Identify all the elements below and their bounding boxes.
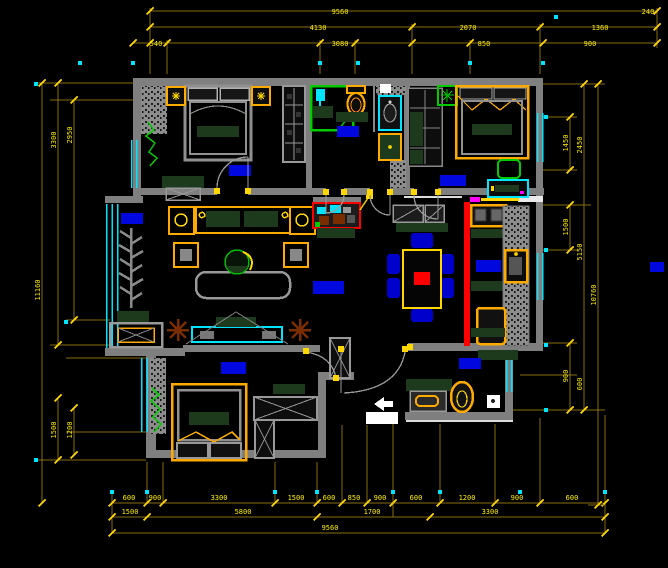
bench — [478, 350, 518, 360]
balcony-label — [121, 213, 143, 224]
wash-basin — [384, 104, 396, 122]
dim-text: 4130 — [310, 24, 327, 32]
armchair — [290, 207, 315, 234]
armchair — [169, 207, 194, 234]
plant — [167, 319, 189, 341]
dim-text: 5800 — [235, 508, 252, 516]
dim-text: 2950 — [66, 127, 74, 144]
dim-text: 1500 — [50, 422, 58, 439]
dim-text: 1700 — [364, 508, 381, 516]
dim-text: 600 — [410, 494, 423, 502]
tv — [216, 317, 256, 327]
paper-holder — [380, 84, 391, 93]
bedroom-1-furniture — [146, 86, 305, 200]
coat-rack — [119, 228, 143, 308]
dim-text: 1200 — [66, 422, 74, 439]
dim-text: 1200 — [459, 494, 476, 502]
bathroom-fixtures — [311, 84, 401, 160]
dim-text: 900 — [584, 40, 597, 48]
shoe-cabinet-top — [406, 379, 452, 391]
counter — [471, 281, 504, 291]
entry-arrow-icon — [374, 397, 393, 411]
dim-text: 540 — [150, 40, 163, 48]
kitchen-label — [476, 260, 501, 272]
dining-chair — [411, 309, 433, 322]
dim-text: 11160 — [34, 279, 42, 300]
hatched-pier — [141, 86, 167, 134]
dim-text: 10760 — [590, 284, 598, 305]
bed-pillow — [472, 124, 512, 135]
floor-plan-canvas[interactable]: 9560 240 4130 2070 1360 540 3080 850 900… — [0, 0, 668, 568]
dim-text: 850 — [478, 40, 491, 48]
table-centerpiece — [414, 272, 430, 285]
dim-text: 600 — [323, 494, 336, 502]
annotation-label — [650, 262, 664, 272]
bedroom-2-label — [440, 175, 466, 186]
bedroom-3-label — [221, 362, 246, 374]
bathroom-label — [337, 126, 359, 137]
bath-shelf — [336, 112, 368, 122]
dining-chair — [411, 233, 433, 248]
living-room-label — [313, 281, 344, 294]
kitchen-fixtures — [464, 197, 529, 346]
dim-text: 2450 — [576, 137, 584, 154]
shower-head — [316, 89, 325, 101]
living-room-furniture — [167, 195, 373, 344]
dim-text: 900 — [562, 370, 570, 383]
dresser-top — [162, 176, 204, 188]
dim-text: 9560 — [332, 8, 349, 16]
dim-text: 1500 — [562, 219, 570, 236]
entry-label — [459, 358, 481, 369]
dim-text: 1500 — [288, 494, 305, 502]
cad-viewport[interactable]: 9560 240 4130 2070 1360 540 3080 850 900… — [0, 0, 668, 568]
bed-pillow — [189, 412, 229, 425]
dim-text: 600 — [576, 378, 584, 391]
bedroom-3-furniture — [151, 362, 317, 460]
dim-text: 900 — [511, 494, 524, 502]
dimension-chain-bottom: 600 900 3300 1500 600 850 900 600 1200 9… — [109, 415, 609, 537]
dim-text: 1360 — [592, 24, 609, 32]
dim-text: 3300 — [482, 508, 499, 516]
dining-chair — [387, 278, 400, 298]
shelf — [273, 384, 305, 394]
dim-text: 3080 — [332, 40, 349, 48]
dining-chair — [441, 278, 454, 298]
coffee-table — [196, 272, 290, 298]
dim-text: 600 — [566, 494, 579, 502]
dim-text: 1450 — [562, 135, 570, 152]
dim-text: 5150 — [576, 244, 584, 261]
dimension-chain-top: 9560 240 4130 2070 1360 540 3080 850 900 — [130, 8, 661, 75]
sliding-door-track — [464, 202, 470, 346]
bedroom-2-furniture — [408, 86, 528, 197]
dim-text: 9560 — [322, 524, 339, 532]
dim-text: 850 — [348, 494, 361, 502]
dim-text: 600 — [123, 494, 136, 502]
dim-text: 240 — [642, 8, 655, 16]
dim-text: 3300 — [50, 132, 58, 149]
fridge — [477, 308, 505, 344]
mat — [117, 311, 149, 323]
dim-text: 900 — [149, 494, 162, 502]
bed-pillow — [197, 126, 239, 137]
dim-text: 900 — [374, 494, 387, 502]
hatched-pier — [390, 160, 406, 188]
dining-chair — [441, 254, 454, 274]
dining-room-furniture — [387, 205, 454, 322]
desk-chair — [498, 160, 520, 178]
dim-text: 2070 — [460, 24, 477, 32]
dining-chair — [387, 254, 400, 274]
plant — [289, 319, 311, 341]
counter — [471, 229, 504, 238]
dim-text: 1500 — [122, 508, 139, 516]
entry-threshold — [366, 412, 398, 424]
dim-text: 3300 — [211, 494, 228, 502]
